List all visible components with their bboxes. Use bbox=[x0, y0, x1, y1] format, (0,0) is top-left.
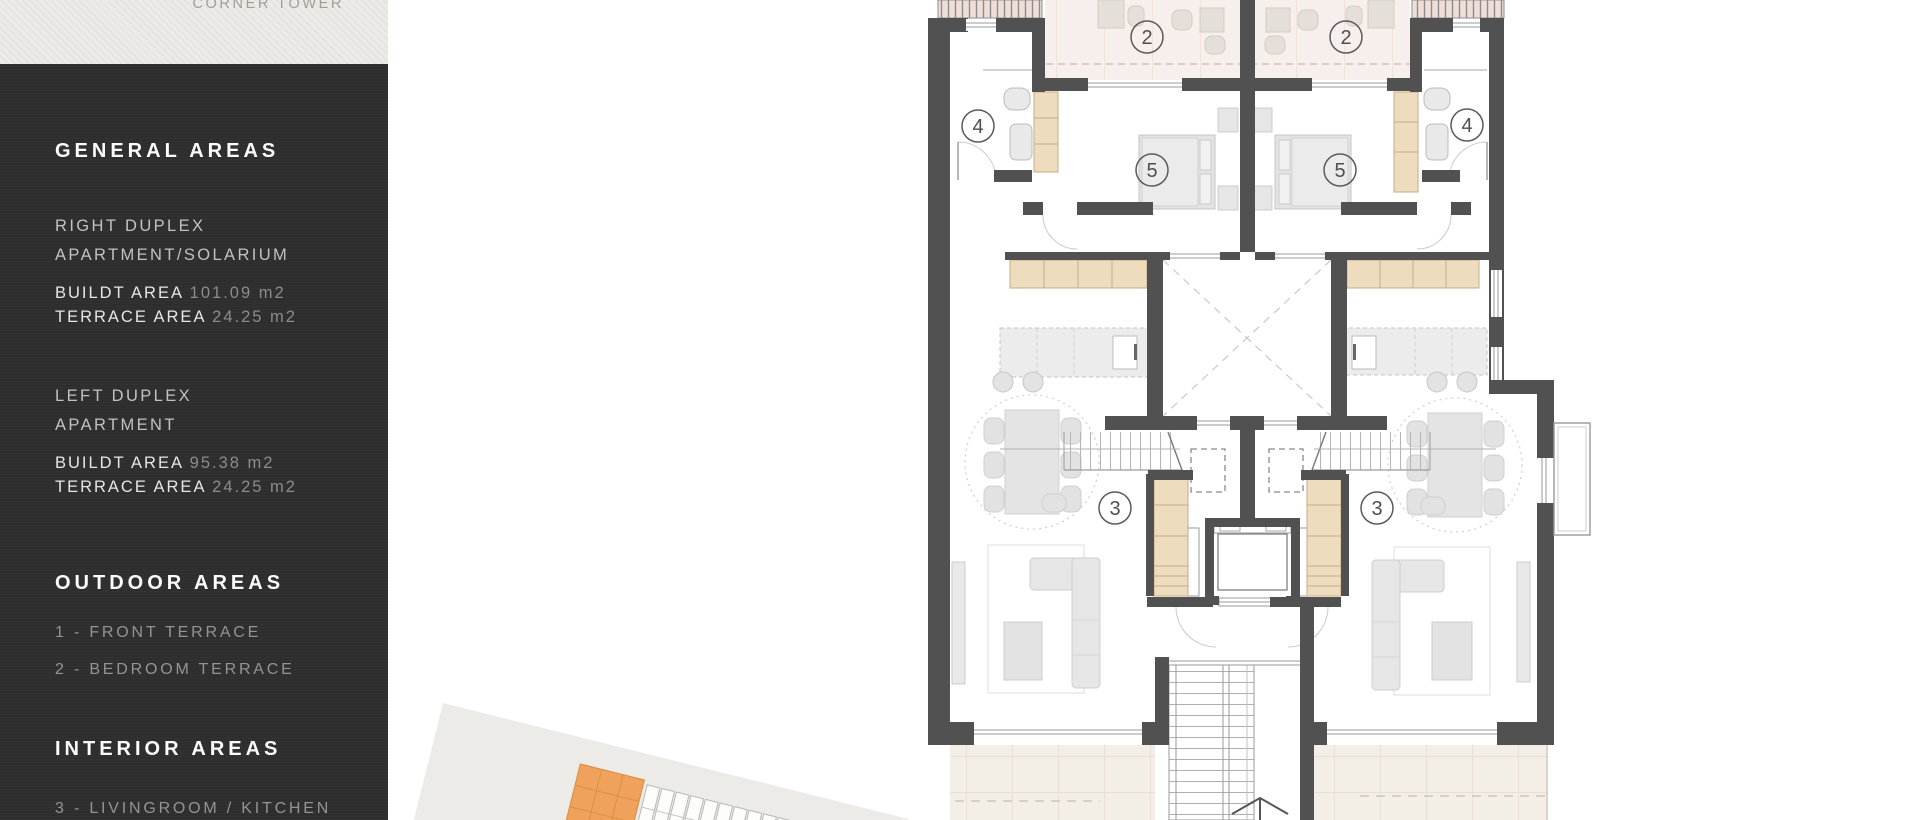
interior-areas-heading: INTERIOR AREAS bbox=[55, 738, 281, 761]
living-right bbox=[1372, 547, 1530, 695]
void-shaft bbox=[1163, 260, 1331, 416]
sink-icon bbox=[1010, 124, 1032, 160]
window bbox=[966, 19, 996, 31]
window bbox=[1327, 727, 1497, 736]
page-title: CORNER TOWER bbox=[192, 0, 344, 12]
front-terrace-left bbox=[950, 745, 1155, 820]
coffee-table bbox=[1004, 622, 1042, 680]
site-strip bbox=[407, 703, 909, 820]
room-label-bath-left: 4 bbox=[962, 110, 994, 142]
bedroom-right bbox=[1252, 108, 1351, 210]
site-plan-inset bbox=[407, 703, 909, 820]
room-label-bath-right: 4 bbox=[1451, 109, 1483, 141]
outdoor-areas-heading: OUTDOOR AREAS bbox=[55, 572, 284, 595]
stool-icon bbox=[1457, 372, 1477, 392]
outdoor-item-front-terrace: 1 - FRONT TERRACE bbox=[55, 614, 261, 652]
svg-text:5: 5 bbox=[1146, 160, 1157, 182]
header-strip: CORNER TOWER bbox=[0, 0, 388, 64]
right-duplex-areas: BUILDT AREA 101.09 m2 TERRACE AREA 24.25… bbox=[55, 281, 297, 329]
svg-text:3: 3 bbox=[1371, 498, 1382, 520]
tv-sideboard bbox=[952, 562, 965, 684]
living-left bbox=[952, 545, 1100, 693]
right-duplex-name: RIGHT DUPLEX APARTMENT/SOLARIUM bbox=[55, 212, 289, 270]
left-duplex-areas: BUILDT AREA 95.38 m2 TERRACE AREA 24.25 … bbox=[55, 451, 297, 499]
svg-text:4: 4 bbox=[1461, 115, 1472, 137]
nightstand-icon bbox=[1218, 108, 1238, 132]
door-arc bbox=[958, 142, 996, 180]
window bbox=[1275, 252, 1325, 260]
general-areas-heading: GENERAL AREAS bbox=[55, 140, 279, 163]
window bbox=[1491, 270, 1502, 317]
room-label-living-left: 3 bbox=[1099, 492, 1131, 524]
door-arc bbox=[1417, 215, 1451, 249]
balcony-outline bbox=[1554, 423, 1590, 535]
elevator-car bbox=[1218, 534, 1287, 590]
sidebar: GENERAL AREAS RIGHT DUPLEX APARTMENT/SOL… bbox=[0, 64, 388, 820]
window bbox=[1170, 252, 1220, 260]
page: 2 2 4 4 5 5 3 3 COR bbox=[0, 0, 1920, 820]
stool-icon bbox=[993, 372, 1013, 392]
window bbox=[1491, 347, 1502, 380]
outdoor-item-bedroom-terrace: 2 - BEDROOM TERRACE bbox=[55, 651, 295, 689]
elevator bbox=[1186, 524, 1309, 606]
bathroom-left bbox=[958, 70, 1032, 180]
toilet-icon bbox=[1004, 88, 1030, 110]
svg-text:2: 2 bbox=[1340, 27, 1351, 49]
window bbox=[1197, 417, 1230, 429]
window bbox=[1539, 458, 1552, 503]
window bbox=[1088, 81, 1182, 89]
window bbox=[1312, 81, 1387, 89]
svg-text:3: 3 bbox=[1109, 498, 1120, 520]
bathroom-right bbox=[1424, 70, 1487, 180]
window bbox=[1264, 417, 1297, 429]
bedroom-left bbox=[1139, 108, 1238, 210]
door-arc bbox=[1176, 607, 1216, 647]
window bbox=[1453, 19, 1480, 31]
kitchen-left bbox=[993, 260, 1148, 392]
interior-item-livingroom-kitchen: 3 - LIVINGROOM / KITCHEN bbox=[55, 790, 331, 820]
sink-icon bbox=[1113, 336, 1137, 369]
top-wardrobes bbox=[1034, 92, 1418, 192]
stool-icon bbox=[1427, 372, 1447, 392]
tv-sideboard bbox=[1517, 562, 1530, 682]
window bbox=[974, 727, 1142, 736]
svg-text:4: 4 bbox=[972, 116, 983, 138]
front-terrace-right bbox=[1314, 745, 1548, 820]
toilet-icon bbox=[1424, 88, 1450, 110]
svg-text:2: 2 bbox=[1141, 27, 1152, 49]
stairs-common bbox=[1169, 661, 1300, 820]
stool-icon bbox=[1023, 372, 1043, 392]
left-duplex-name: LEFT DUPLEX APARTMENT bbox=[55, 382, 192, 440]
room-label-living-right: 3 bbox=[1361, 492, 1393, 524]
svg-text:5: 5 bbox=[1334, 160, 1345, 182]
sink-icon bbox=[1426, 124, 1448, 160]
coffee-table bbox=[1432, 622, 1472, 680]
kitchen-right bbox=[1342, 260, 1487, 392]
nightstand-icon bbox=[1218, 186, 1238, 210]
door-arc bbox=[1043, 215, 1077, 249]
